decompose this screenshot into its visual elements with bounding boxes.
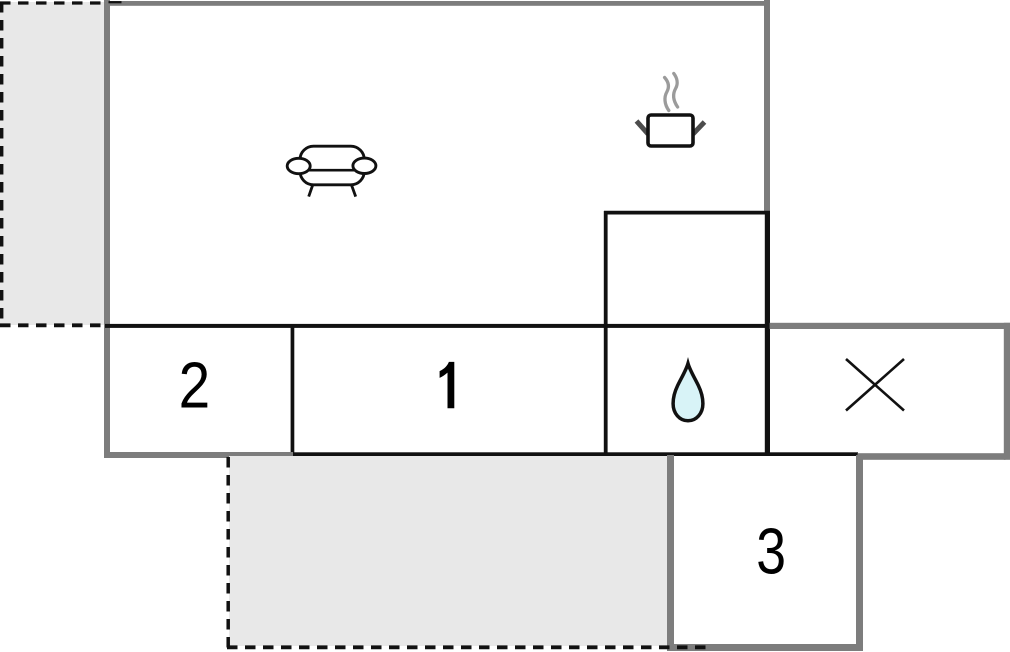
svg-text:3: 3: [756, 515, 786, 588]
svg-text:2: 2: [179, 349, 211, 421]
